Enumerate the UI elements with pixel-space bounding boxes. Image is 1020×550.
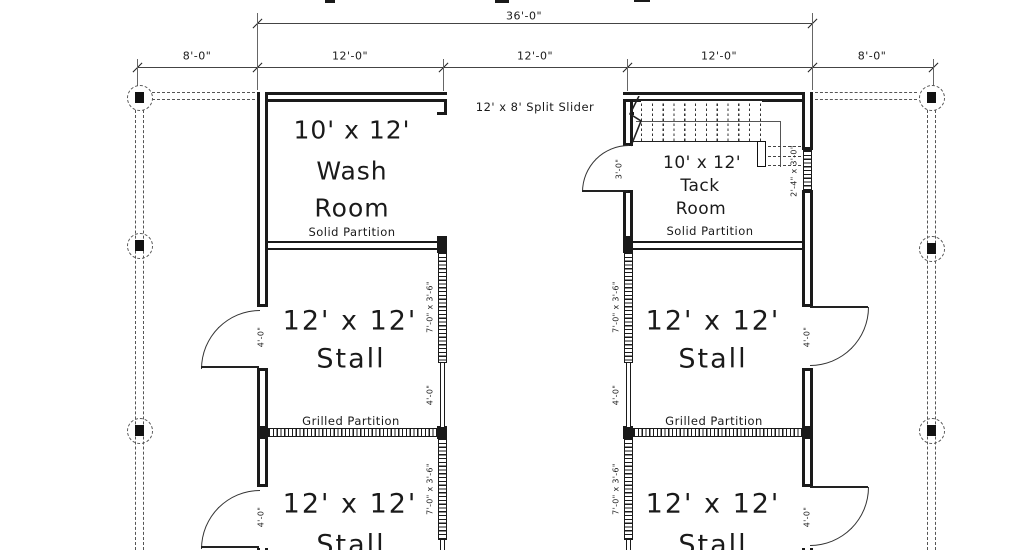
post: [135, 425, 144, 436]
cutoff-dimension-mark: [634, 0, 650, 2]
wall-top-left: [257, 92, 447, 102]
dim-segment-bay2: 12'-0": [517, 50, 553, 63]
stall-front-solid: [626, 540, 631, 550]
grill-size-label: 7'-0" x 3'-6": [426, 463, 435, 515]
stall-size: 12' x 12': [283, 306, 418, 337]
grilled-partition-label: Grilled Partition: [302, 414, 400, 428]
stall-front-solid-width-label: 4'-0": [612, 385, 621, 405]
cutoff-dimension-mark: [325, 0, 335, 3]
stair-window: [803, 150, 812, 190]
jamb-cap: [257, 484, 268, 487]
stall-front-solid-width-label: 4'-0": [426, 385, 435, 405]
dim-overall-width: 36'-0": [506, 10, 542, 23]
extension-line: [443, 59, 444, 91]
grill-size-label: 7'-0" x 3'-6": [426, 281, 435, 333]
solid-partition-wall-left: [268, 241, 437, 250]
overhang-line: [135, 110, 136, 550]
tack-room-name: Room: [676, 199, 726, 219]
floor-plan-canvas: 36'-0" 8'-0" 12'-0" 12'-0" 12'-0" 8'-0": [0, 0, 1020, 550]
extension-line: [137, 59, 138, 86]
wall-junction-block: [802, 426, 813, 439]
stair-handrail: [636, 121, 780, 122]
wall-junction-block: [437, 236, 447, 253]
stall-size: 12' x 12': [283, 489, 418, 520]
tack-door-width-label: 3'-0": [615, 159, 624, 179]
stall-front-grill: [624, 252, 633, 363]
dim-segment-bay1: 12'-0": [332, 50, 368, 63]
overhang-line: [927, 110, 928, 550]
overhang-line: [152, 92, 255, 93]
door-swing-arc: [810, 307, 869, 366]
stair-stringer: [633, 141, 763, 142]
extension-line: [933, 59, 934, 86]
overhang-line: [815, 99, 917, 100]
wash-room-size: 10' x 12': [293, 116, 410, 145]
overhang-line: [815, 92, 917, 93]
stall-door-width-label: 4'-0": [803, 507, 812, 527]
door-leaf: [810, 486, 868, 488]
post: [135, 240, 144, 251]
wall-junction-block: [623, 236, 633, 253]
stall-name: Stall: [316, 344, 385, 375]
stair-window-size-label: 2'-4" x 3'-0": [790, 145, 799, 197]
door-leaf: [201, 366, 259, 368]
dim-segment-right-overhang: 8'-0": [858, 50, 887, 63]
door-leaf: [201, 546, 259, 548]
slider-jamb: [437, 112, 447, 115]
overhang-line: [143, 110, 144, 550]
stall-front-grill: [438, 252, 447, 363]
overhang-line: [935, 110, 936, 550]
stall-name: Stall: [316, 530, 385, 550]
dim-segment-left-overhang: 8'-0": [183, 50, 212, 63]
grilled-partition-label: Grilled Partition: [665, 414, 763, 428]
stall-front-grill: [438, 438, 447, 540]
tack-room-size: 10' x 12': [663, 153, 741, 173]
jamb-cap: [802, 190, 813, 193]
grill-size-label: 7'-0" x 3'-6": [612, 463, 621, 515]
stall-size: 12' x 12': [646, 306, 781, 337]
stall-door-width-label: 4'-0": [803, 327, 812, 347]
stall-front-solid: [440, 363, 445, 427]
grilled-partition-wall-left: [268, 428, 437, 437]
extension-line: [627, 59, 628, 91]
stall-door-width-label: 4'-0": [257, 327, 266, 347]
stair-break-mark: [626, 96, 644, 148]
grill-size-label: 7'-0" x 3'-6": [612, 281, 621, 333]
wall-left: [257, 92, 268, 307]
tack-room-name: Tack: [680, 176, 719, 196]
dimension-line-overall: [257, 23, 813, 24]
wash-room-name: Wash: [316, 157, 387, 186]
extension-line: [812, 13, 813, 90]
tack-door-leaf: [582, 190, 628, 192]
tack-room-front-wall: [623, 193, 633, 236]
wash-room-name: Room: [314, 194, 389, 223]
post: [927, 425, 936, 436]
door-leaf: [810, 306, 868, 308]
door-swing-arc: [201, 490, 260, 549]
stall-size: 12' x 12': [646, 489, 781, 520]
solid-partition-label: Solid Partition: [666, 224, 753, 238]
post: [927, 92, 936, 103]
solid-partition-wall-right: [633, 241, 802, 250]
stall-name: Stall: [678, 530, 747, 550]
grilled-partition-wall-right: [633, 428, 802, 437]
cutoff-dimension-mark: [495, 0, 509, 3]
solid-partition-label: Solid Partition: [308, 225, 395, 239]
wall-junction-block: [257, 426, 268, 439]
wall-right: [802, 190, 813, 307]
door-swing-arc: [810, 487, 869, 546]
dim-segment-bay3: 12'-0": [701, 50, 737, 63]
stall-name: Stall: [678, 344, 747, 375]
split-slider-label: 12' x 8' Split Slider: [476, 100, 595, 114]
overhang-line: [152, 99, 255, 100]
door-swing-arc: [201, 310, 260, 369]
post: [135, 92, 144, 103]
extension-line: [257, 13, 258, 90]
stair-newel-post: [757, 141, 766, 167]
post: [927, 243, 936, 254]
wall-right: [802, 92, 813, 150]
stall-front-grill: [624, 438, 633, 540]
stair-handrail: [780, 121, 781, 167]
stall-door-width-label: 4'-0": [257, 507, 266, 527]
jamb-cap: [257, 304, 268, 307]
stall-front-solid: [440, 540, 445, 550]
jamb-cap: [802, 368, 813, 371]
stall-front-solid: [626, 363, 631, 427]
